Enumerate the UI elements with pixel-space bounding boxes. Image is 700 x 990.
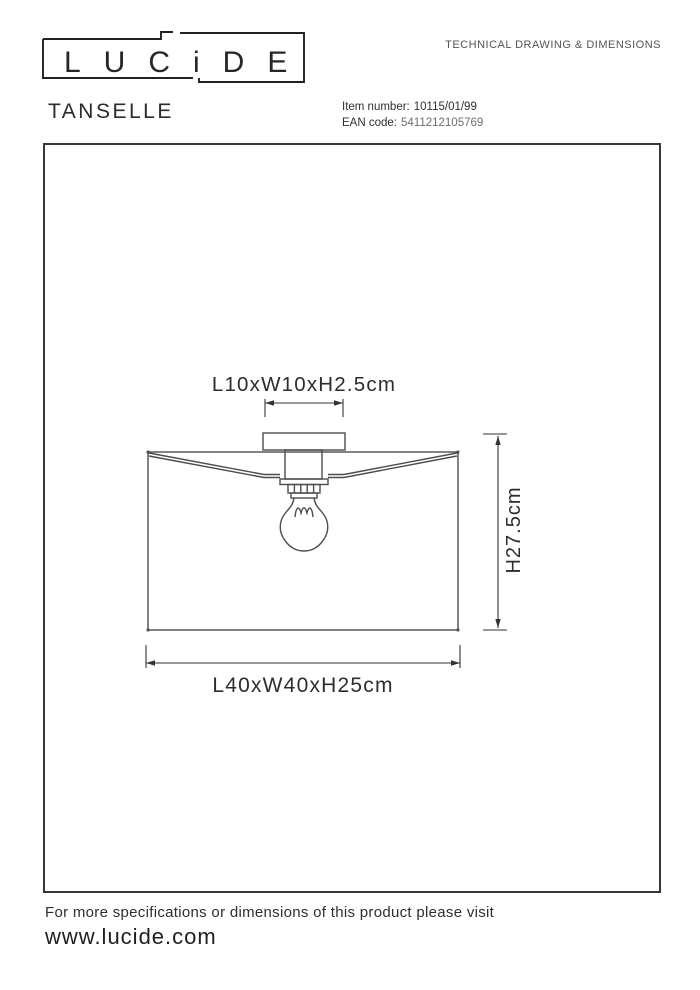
footer-url: www.lucide.com [45,924,217,950]
socket-flange [280,479,328,485]
dim-canopy-extension-lines [265,399,343,417]
dim-canopy-arrow-left [265,400,274,406]
bulb-filament [295,508,313,517]
dim-shade-arrow-right [451,660,460,666]
dimension-shade: L40xW40xH25cm [146,645,460,697]
shade-top-fold-left-outer [149,453,280,475]
page: LUCiDE TECHNICAL DRAWING & DIMENSIONS TA… [0,0,700,990]
doc-title: TECHNICAL DRAWING & DIMENSIONS [445,39,661,51]
shade-corner-marks [147,451,460,632]
ean-code-label: EAN code: [342,117,397,129]
dim-height-arrow-bottom [495,619,500,628]
lucide-logo: LUCiDE [43,31,305,85]
ceiling-canopy [263,433,345,450]
ean-code-value: 5411212105769 [401,117,483,129]
shade-top-fold-right-outer [328,453,457,475]
dim-height-label: H27.5cm [503,486,525,573]
technical-drawing: L10xW10xH2.5cm H27.5cm L40xW40xH25cm [43,143,661,893]
item-number-value: 10115/01/99 [414,101,477,113]
dim-shade-label: L40xW40xH25cm [212,674,393,697]
ceiling-lamp-drawing [147,433,460,631]
light-bulb [280,498,328,551]
footer-note: For more specifications or dimensions of… [45,904,494,921]
mounting-stem [285,450,322,479]
dim-canopy-arrow-right [334,400,343,406]
lucide-logo-text: LUCiDE [64,46,310,79]
dim-height-arrow-top [495,436,500,445]
product-name: TANSELLE [48,101,174,123]
item-info: Item number:10115/01/99 EAN code:5411212… [342,100,483,131]
dim-shade-extension-lines [146,645,460,668]
item-number-row: Item number:10115/01/99 [342,100,483,116]
socket-thread [288,485,320,494]
dim-canopy-label: L10xW10xH2.5cm [212,373,396,396]
socket-ring [291,493,317,498]
ean-code-row: EAN code:5411212105769 [342,116,483,132]
socket-thread-ridges [294,485,313,494]
dim-shade-arrow-left [146,660,155,666]
dimension-total-height: H27.5cm [483,434,525,630]
item-number-label: Item number: [342,101,410,113]
dimension-canopy: L10xW10xH2.5cm [212,373,396,417]
